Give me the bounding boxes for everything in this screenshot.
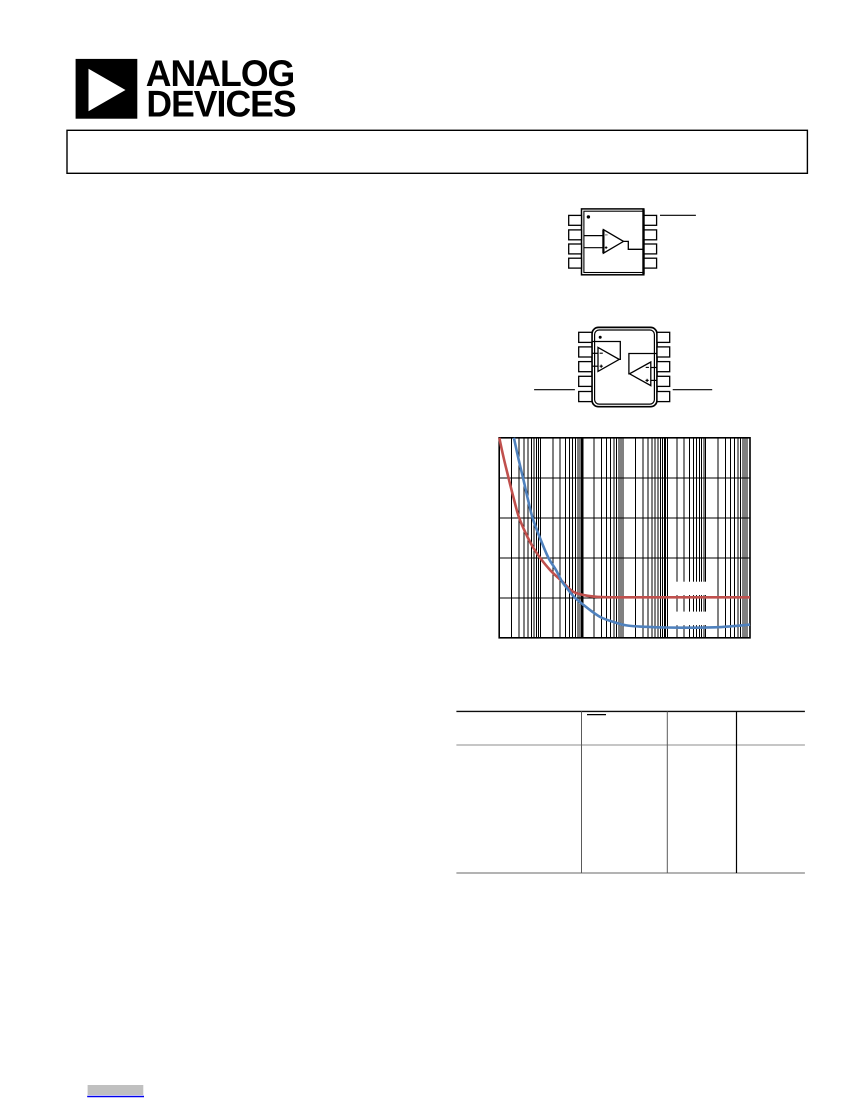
svg-text:DEVICES: DEVICES [146, 84, 296, 125]
